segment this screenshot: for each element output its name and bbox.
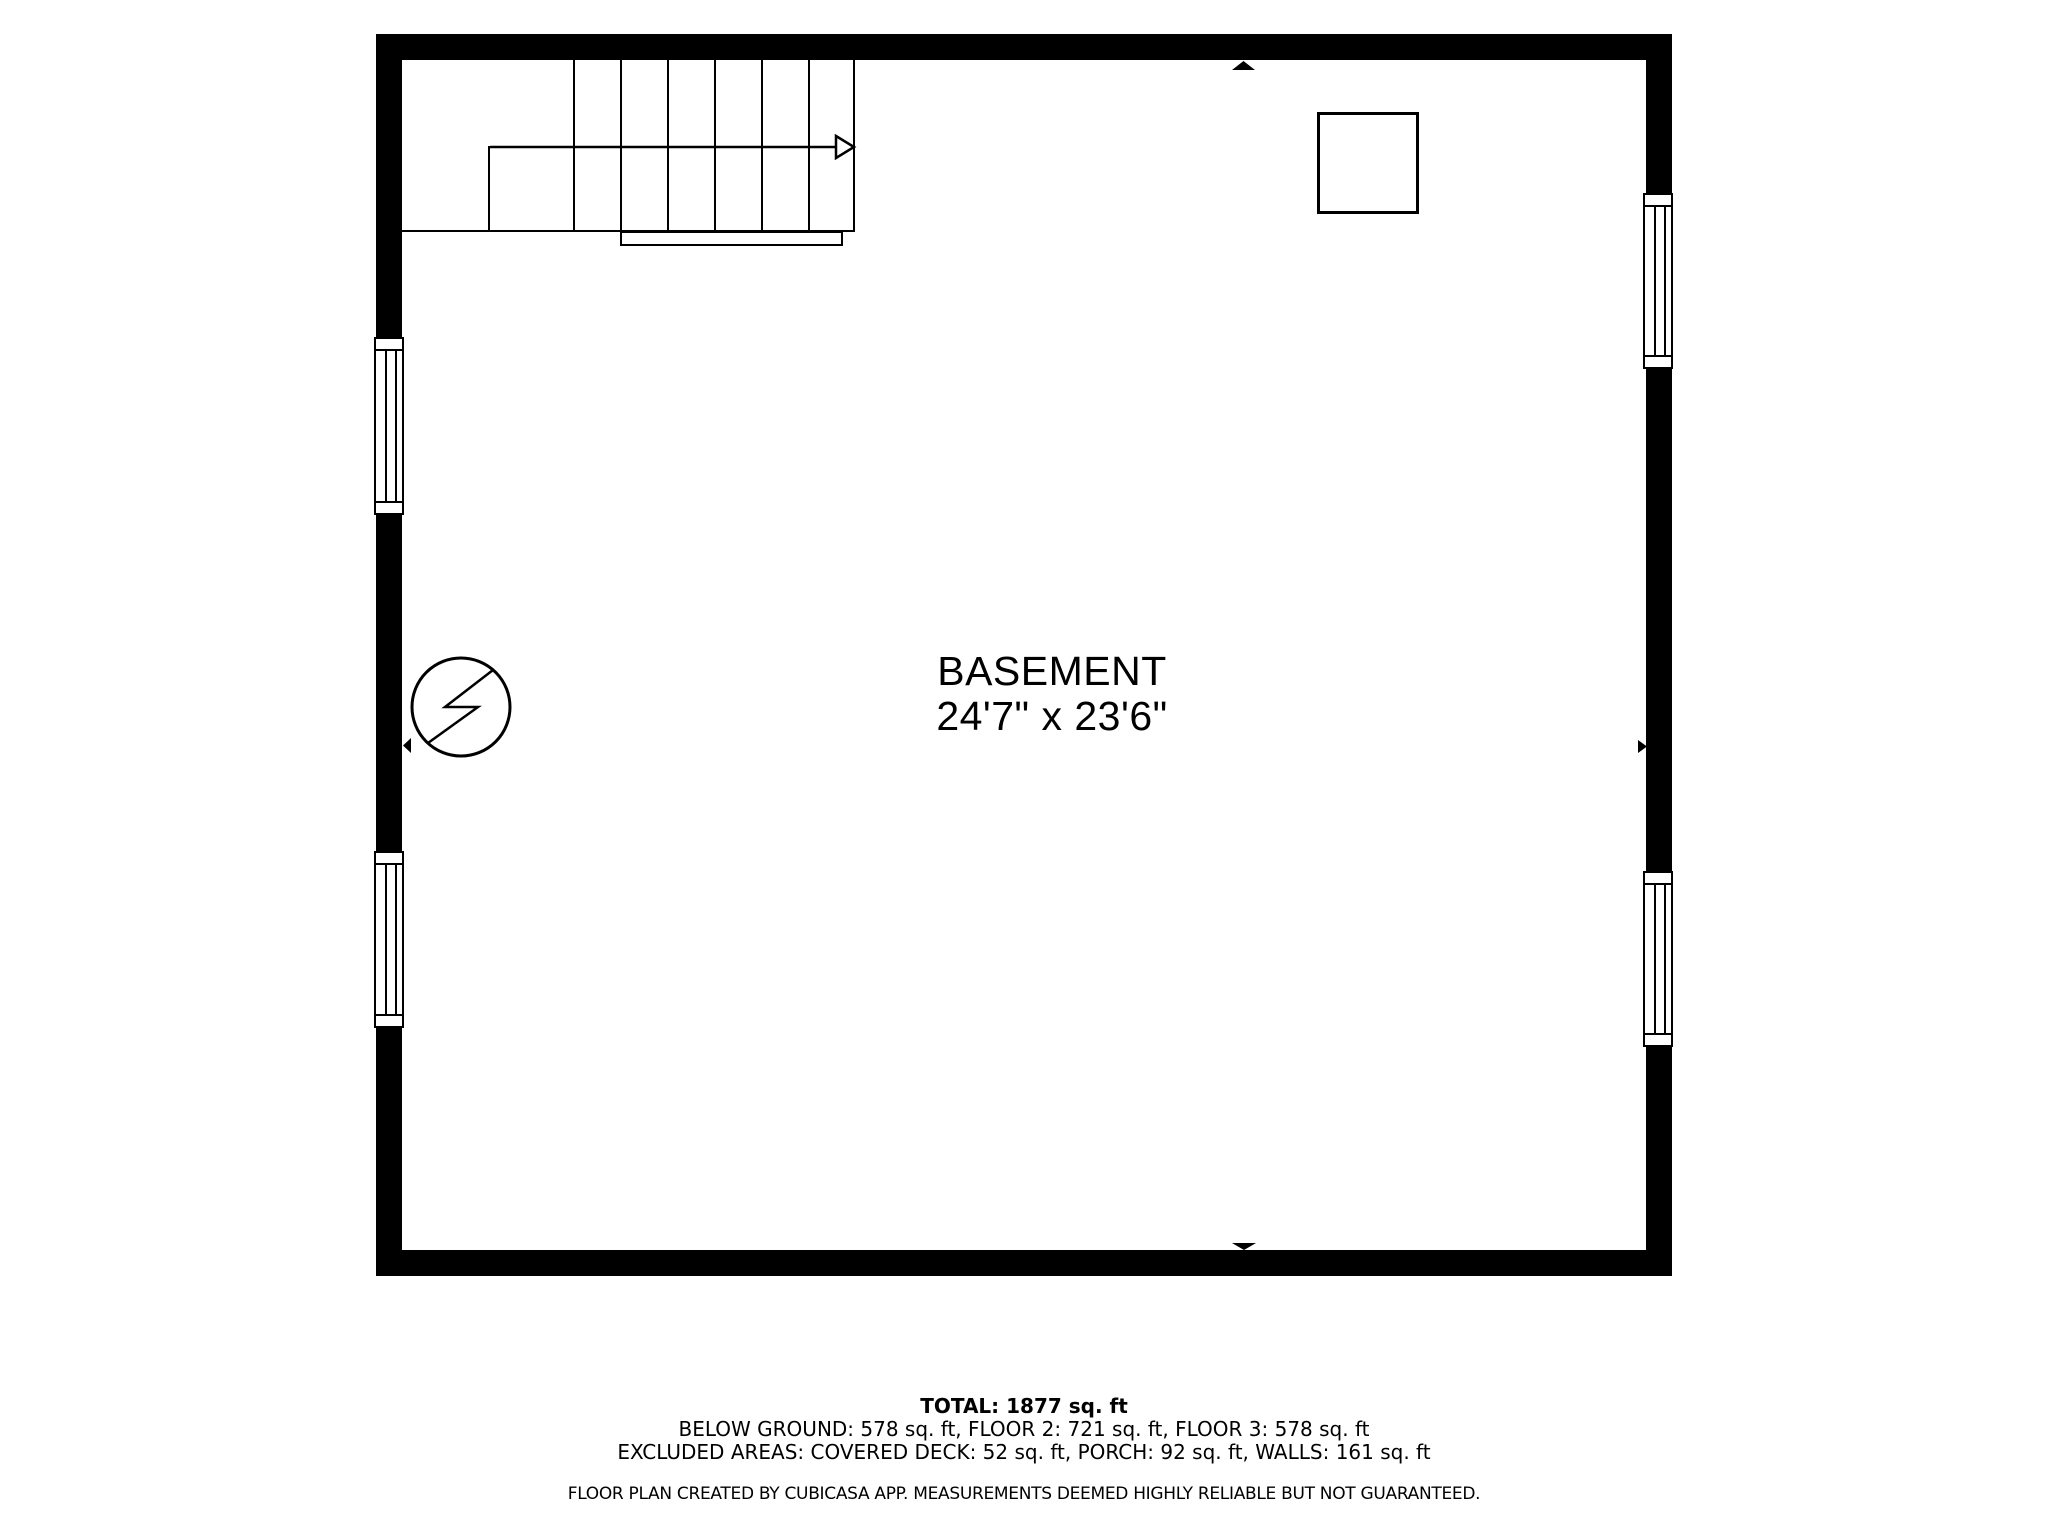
- room-name: BASEMENT: [852, 649, 1252, 694]
- area-summary: TOTAL: 1877 sq. ft BELOW GROUND: 578 sq.…: [0, 1395, 2048, 1506]
- excluded-areas-line: EXCLUDED AREAS: COVERED DECK: 52 sq. ft,…: [0, 1441, 2048, 1464]
- disclaimer-line: FLOOR PLAN CREATED BY CUBICASA APP. MEAS…: [0, 1483, 2048, 1506]
- lightning-bolt-icon: [428, 670, 493, 743]
- room-label: BASEMENT 24'7" x 23'6": [852, 649, 1252, 739]
- room-dimensions: 24'7" x 23'6": [852, 694, 1252, 739]
- wall-marker-arrow-top: [1232, 61, 1255, 70]
- wall-marker-arrow-left: [403, 738, 411, 753]
- wall-marker-arrow-right: [1638, 740, 1647, 753]
- floor-areas-line: BELOW GROUND: 578 sq. ft, FLOOR 2: 721 s…: [0, 1418, 2048, 1441]
- line-art-overlay: [0, 0, 2048, 1536]
- stair-direction-arrowhead: [836, 136, 854, 158]
- total-area-line: TOTAL: 1877 sq. ft: [0, 1395, 2048, 1418]
- floor-plan-canvas: BASEMENT 24'7" x 23'6" TOTAL: 1877 sq. f…: [0, 0, 2048, 1536]
- wall-marker-arrow-bottom: [1232, 1243, 1256, 1250]
